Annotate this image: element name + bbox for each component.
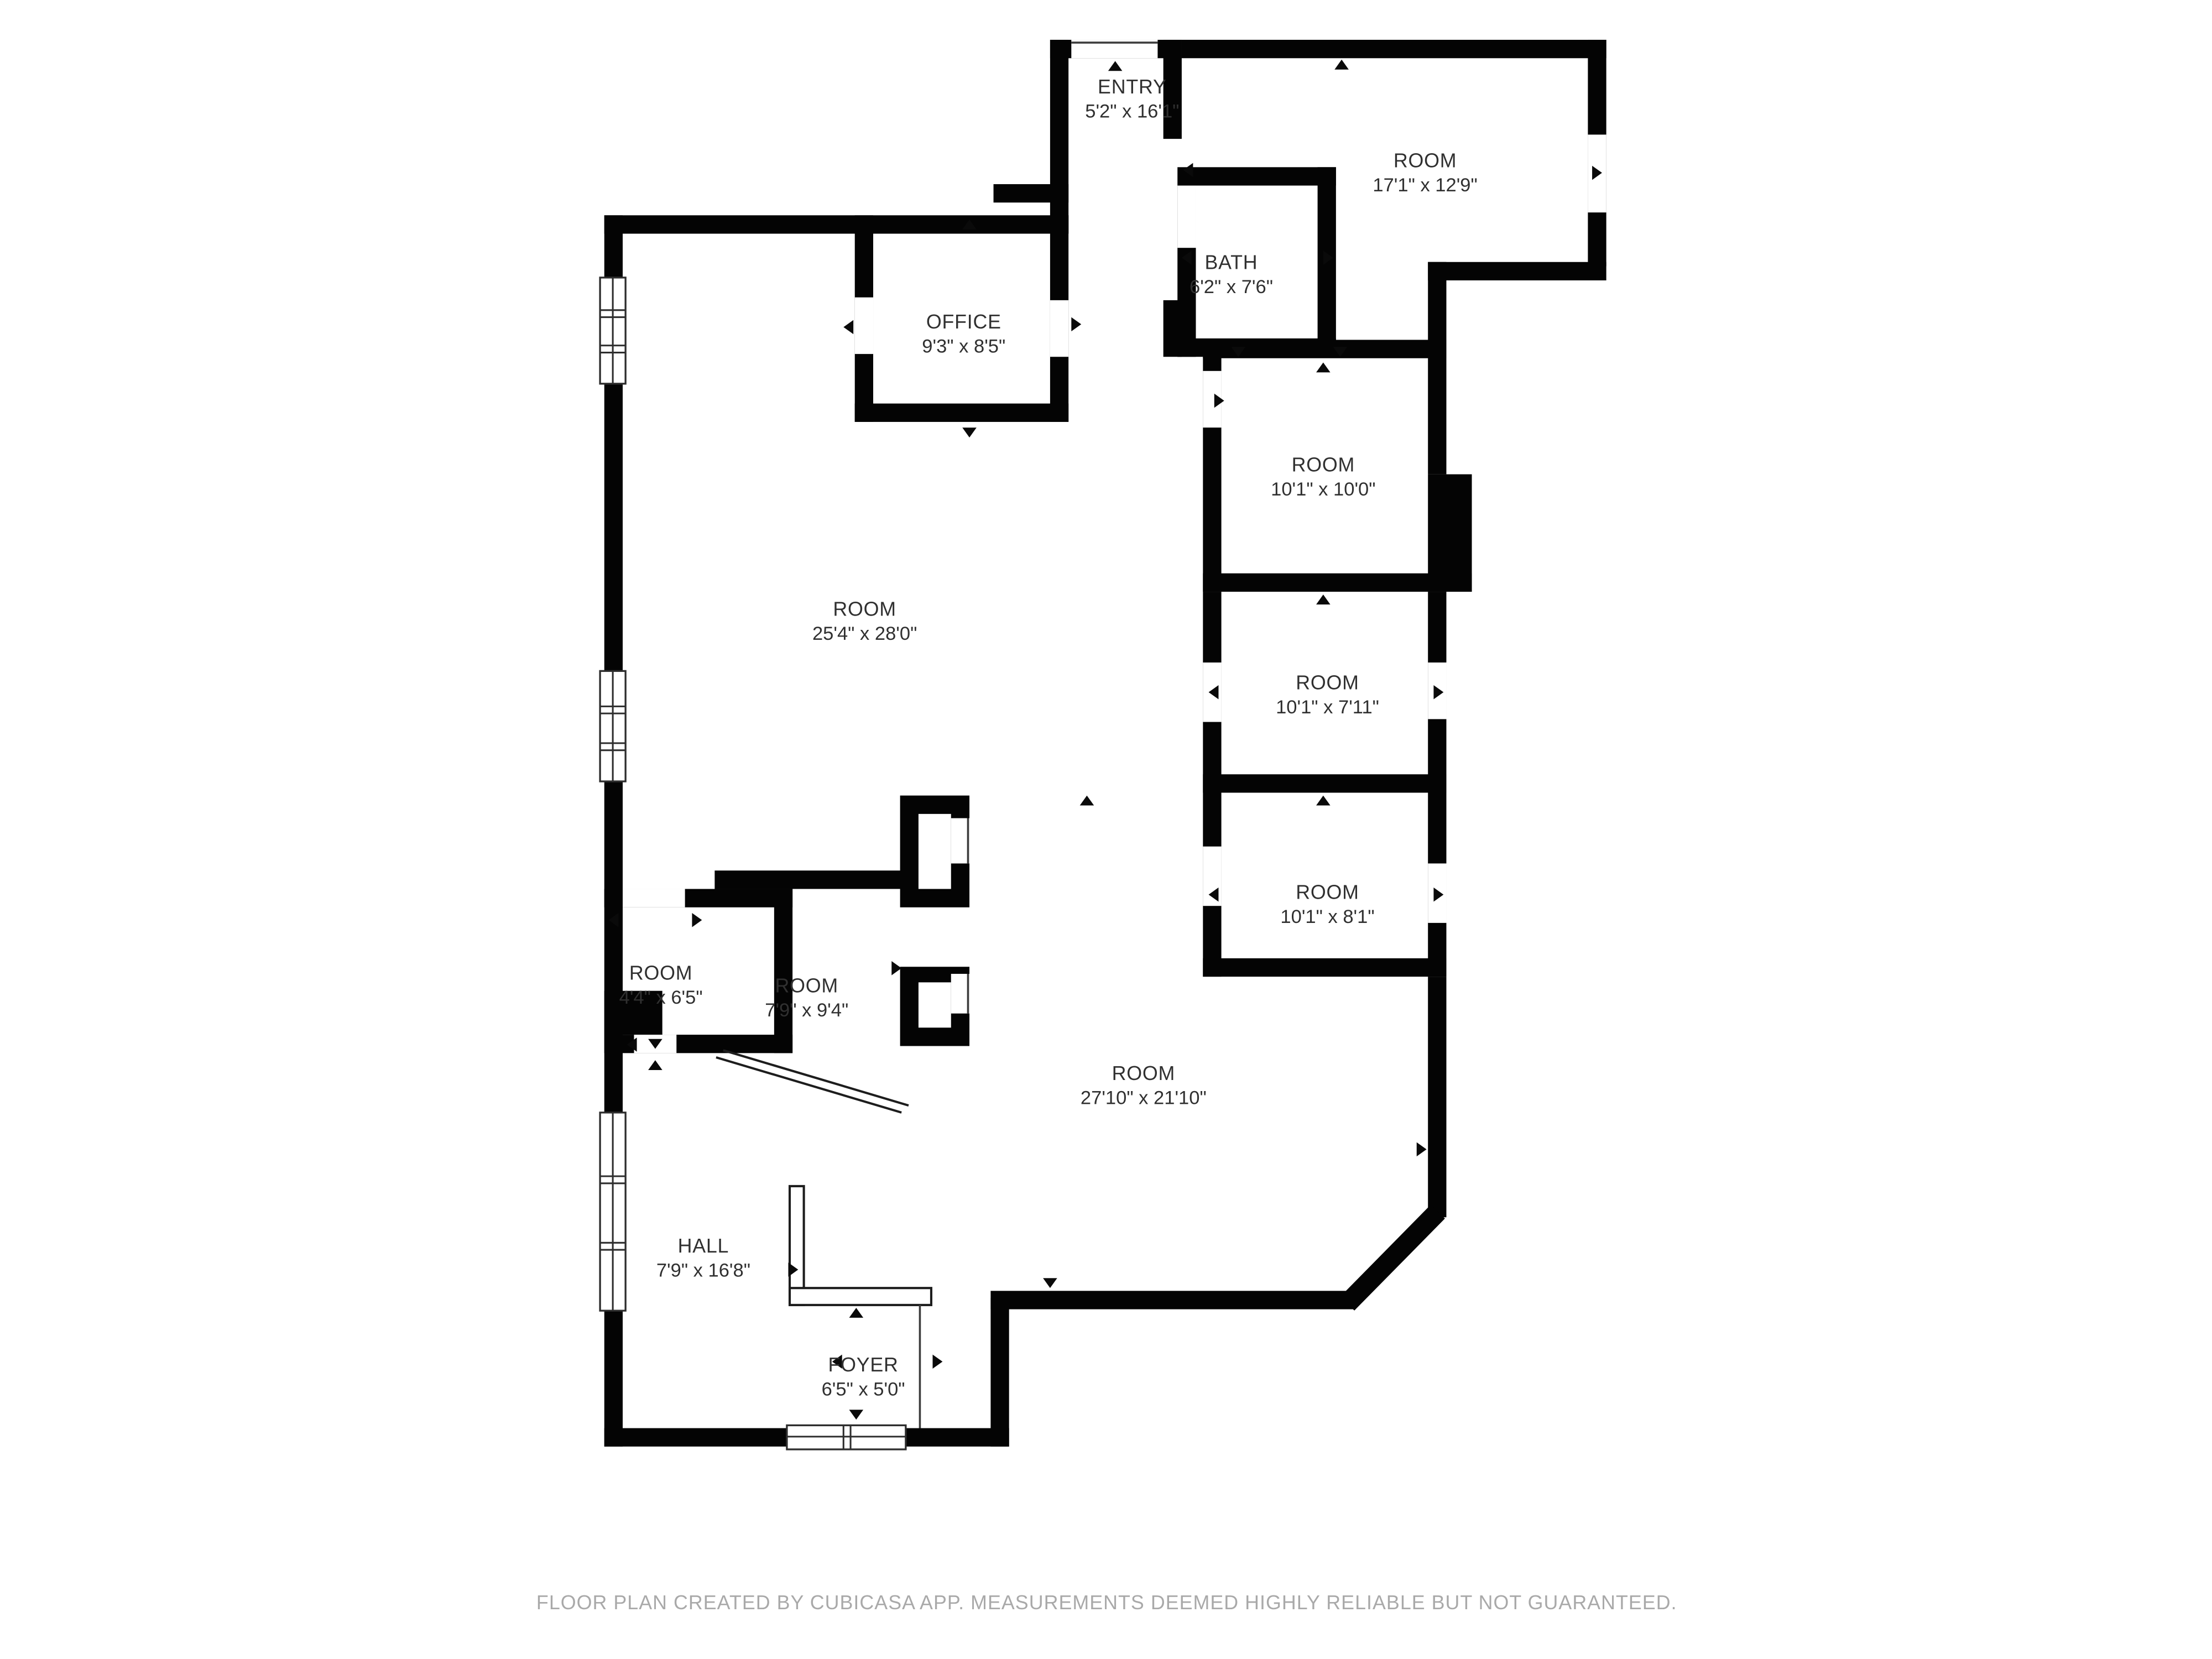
door-swing-icon [1417,1142,1427,1157]
door-swing-icon [1316,796,1331,806]
floor-plan: ENTRY 5'2" x 16'1" ROOM 17'1" x 12'9" BA… [0,0,2212,1659]
room-label-room-10: ROOM 10'1" x 10'0" [1271,454,1375,500]
room-dims: 7'9" x 9'4" [765,1000,848,1021]
room-dims: 7'9" x 16'8" [656,1260,750,1281]
door-swing-icon [1334,60,1349,70]
door-swing-icon [1043,1278,1057,1288]
room-dims: 10'1" x 8'1" [1280,906,1374,927]
window-icons [600,278,906,1449]
room-dims: 6'5" x 5'0" [822,1379,905,1400]
floor-plan-canvas: ENTRY 5'2" x 16'1" ROOM 17'1" x 12'9" BA… [0,0,2212,1659]
room-name: ROOM [1296,672,1359,694]
door-swing-icon [1080,796,1094,806]
room-label-room-17: ROOM 17'1" x 12'9" [1373,149,1477,196]
disclaimer-text: FLOOR PLAN CREATED BY CUBICASA APP. MEAS… [536,1592,1677,1614]
room-label-bath: BATH 6'2" x 7'6" [1190,252,1273,298]
room-dims: 6'2" x 7'6" [1190,276,1273,298]
door-swing-icon [648,1060,662,1070]
door-swing-icon [933,1354,943,1369]
room-label-room-81: ROOM 10'1" x 8'1" [1280,881,1374,927]
room-label-foyer: FOYER 6'5" x 5'0" [822,1354,905,1400]
window-icon [787,1425,906,1449]
room-name: ROOM [1112,1062,1175,1084]
room-name: ROOM [1394,149,1457,171]
door-swing-icon [1316,362,1331,372]
room-dims: 25'4" x 28'0" [812,623,917,644]
door-swing-icon [1316,594,1331,604]
room-dims: 27'10" x 21'10" [1081,1087,1207,1108]
window-icon [600,278,625,384]
room-name: ROOM [1292,454,1355,476]
room-name: FOYER [828,1354,898,1376]
room-dims: 10'1" x 7'11" [1276,697,1379,718]
room-name: ROOM [833,598,896,620]
room-name: ROOM [1296,881,1359,903]
door-swing-icon [849,1410,864,1420]
door-swing-icon [1108,61,1123,71]
room-name: BATH [1205,252,1258,274]
room-label-room-25: ROOM 25'4" x 28'0" [812,598,917,645]
room-dims: 17'1" x 12'9" [1373,175,1477,196]
room-name: ROOM [629,962,692,984]
room-name: ROOM [775,974,838,997]
room-name: ENTRY [1098,76,1167,98]
door-swing-icon [1071,317,1081,332]
window-icon [600,671,625,781]
door-swing-icon [843,320,853,335]
room-label-room-27: ROOM 27'10" x 21'10" [1081,1062,1207,1109]
room-dims: 5'2" x 16'1" [1085,101,1179,122]
room-labels: ENTRY 5'2" x 16'1" ROOM 17'1" x 12'9" BA… [619,76,1478,1400]
railing-lines [716,1050,931,1428]
window-icon [600,1113,625,1311]
door-swing-icon [692,913,702,927]
room-label-hall: HALL 7'9" x 16'8" [656,1235,750,1281]
room-name: OFFICE [926,311,1001,333]
walls [604,40,1606,1447]
door-swing-icon [849,1308,864,1318]
room-dims: 10'1" x 10'0" [1271,479,1375,500]
room-label-room-711: ROOM 10'1" x 7'11" [1276,672,1379,718]
door-swing-icon [891,961,901,975]
room-label-office: OFFICE 9'3" x 8'5" [922,311,1005,357]
room-dims: 9'3" x 8'5" [922,336,1005,357]
room-label-room-44: ROOM 4'4" x 6'5" [619,962,703,1008]
room-dims: 4'4" x 6'5" [619,987,703,1008]
door-swing-icon [962,427,977,437]
room-name: HALL [678,1235,729,1257]
